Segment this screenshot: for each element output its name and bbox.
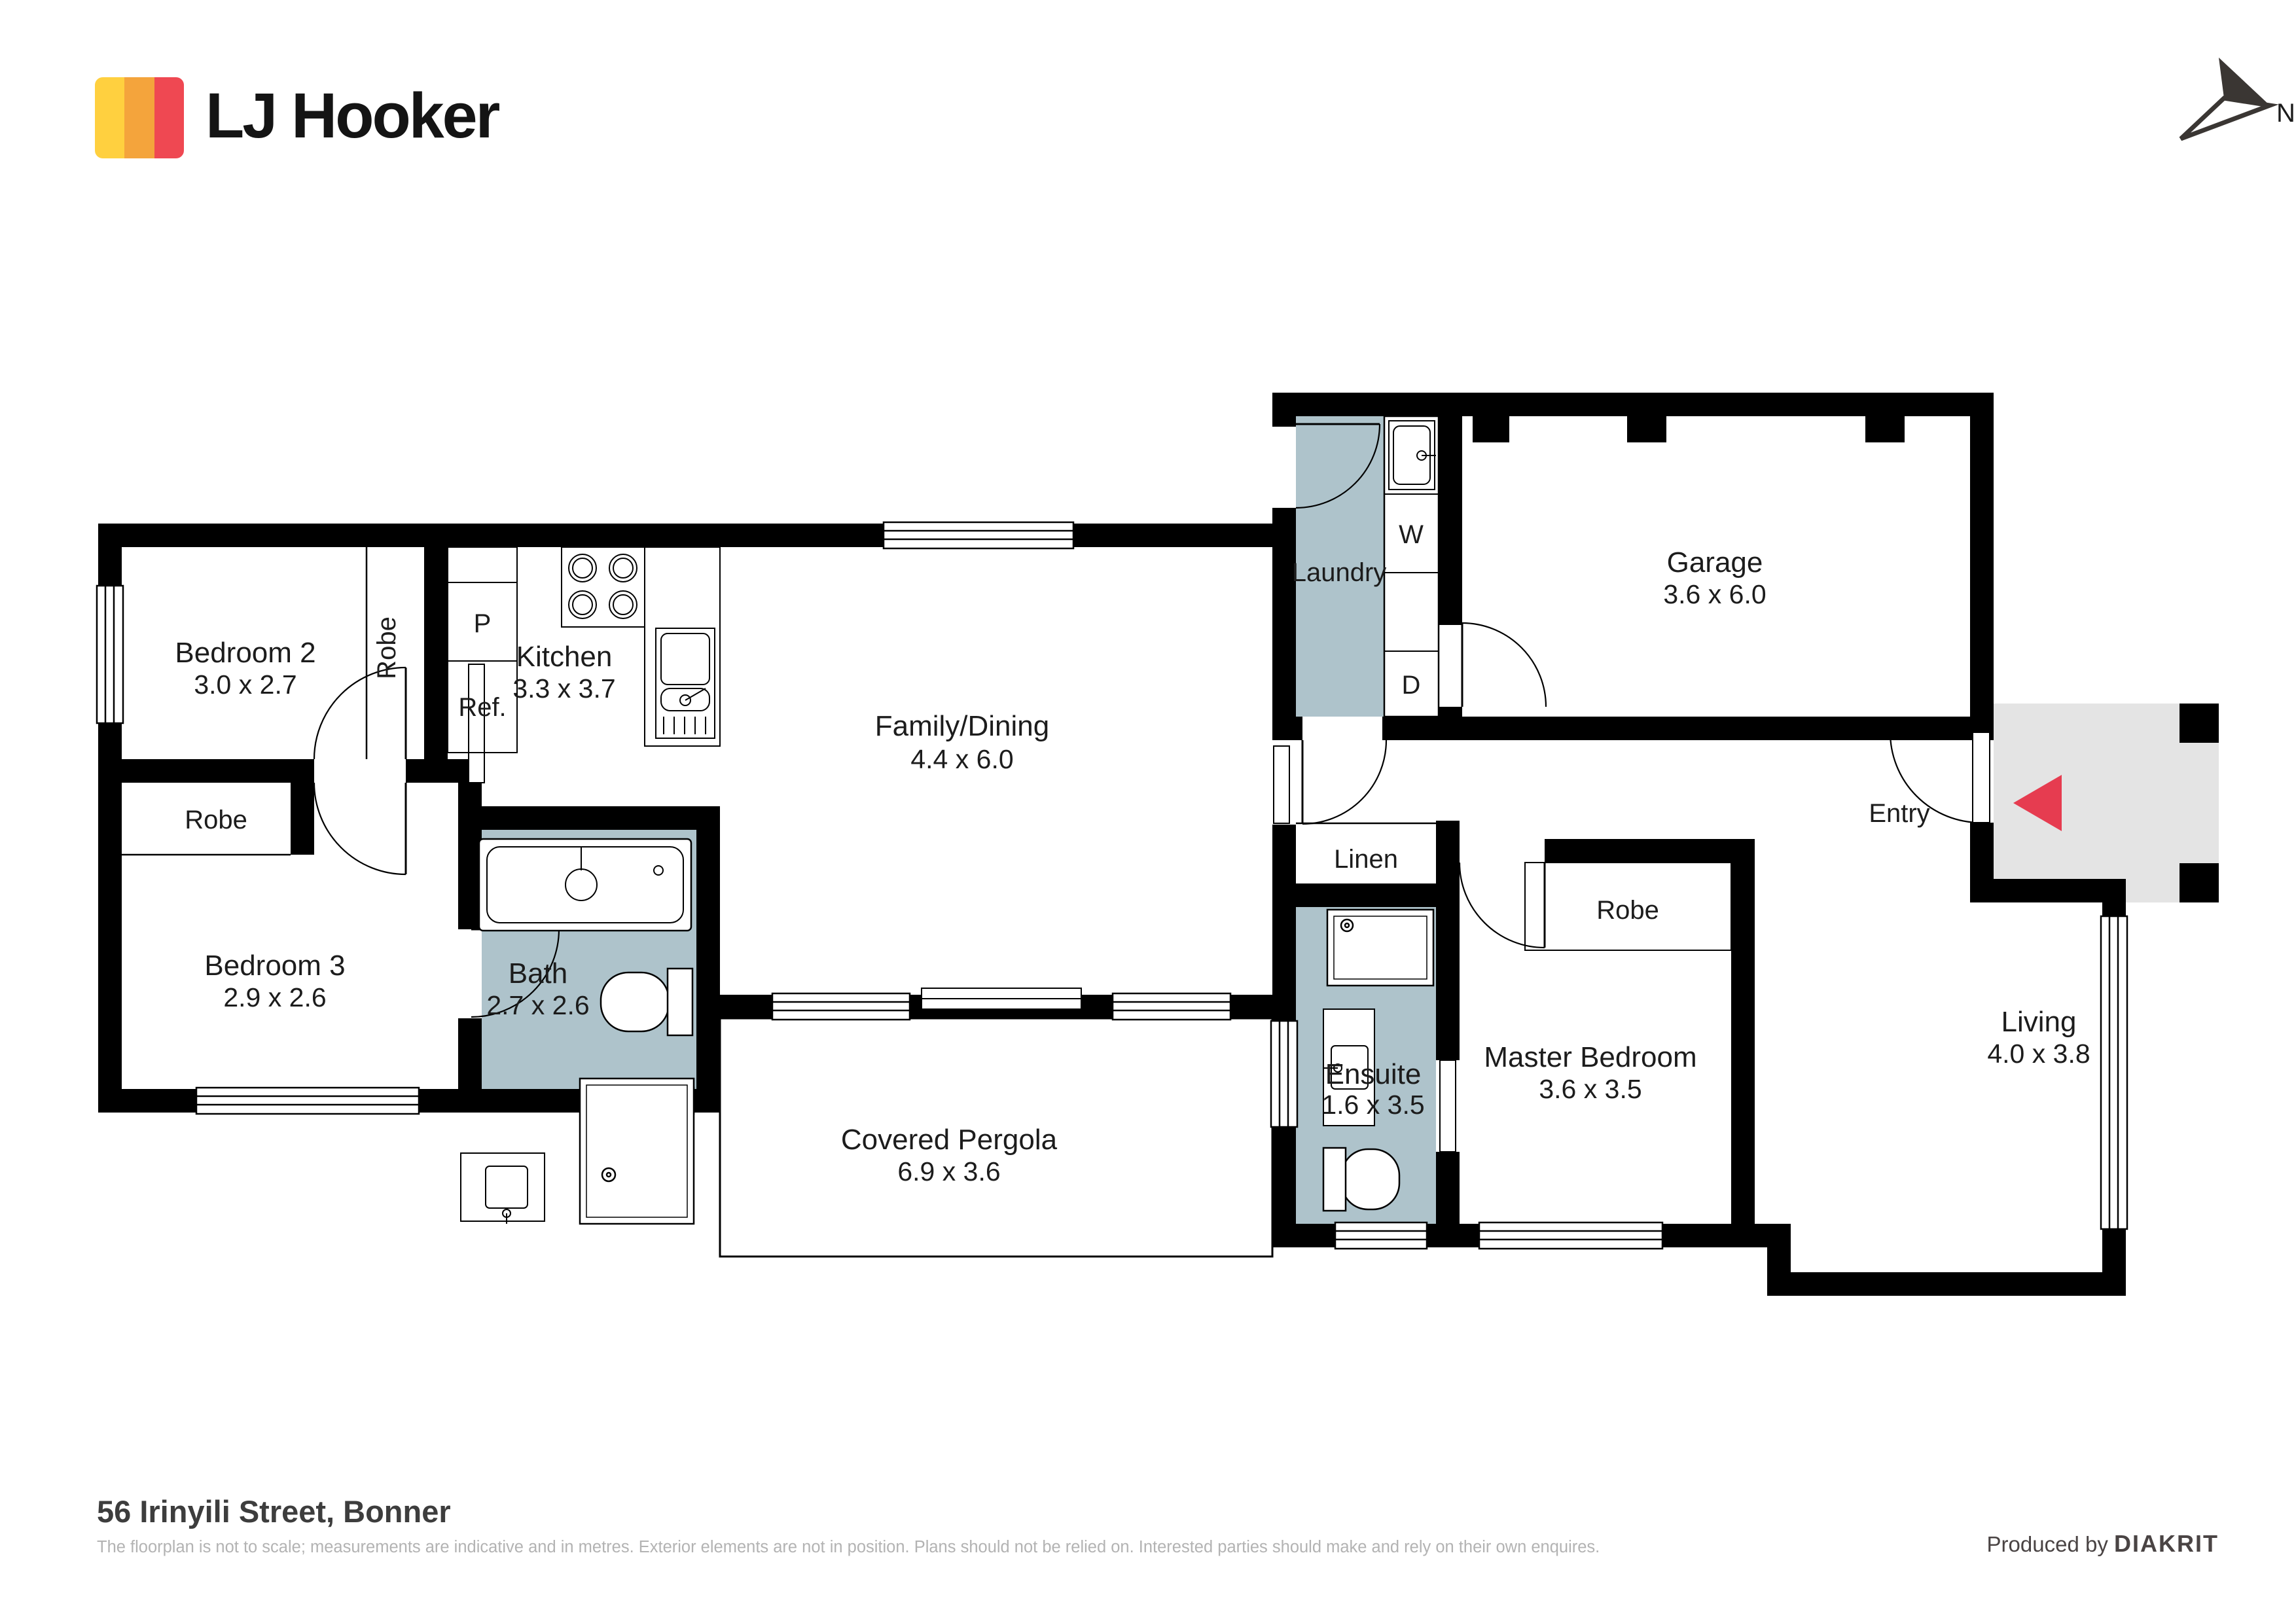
window-master-bottom [1479,1222,1662,1249]
ensuite-dims: 1.6 x 3.5 [1321,1090,1424,1120]
ensuite-shower-icon [1327,910,1433,986]
disclaimer-text: The floorplan is not to scale; measureme… [97,1538,1600,1557]
toilet-icon [601,969,692,1035]
living-dims: 4.0 x 3.8 [1987,1039,2090,1069]
door-bedroom3 [314,783,406,874]
floorplan-svg: N Bedroom 2 3.0 x 2.7 Robe P Ref. Kitche… [0,0,2296,1623]
bath-dims: 2.7 x 2.6 [486,990,589,1020]
robe-bedroom2-label: Robe [372,616,401,679]
window-living-right [2101,916,2127,1229]
living-label: Living [2001,1006,2077,1038]
robe-master-label: Robe [1596,896,1659,925]
bath-label: Bath [509,957,568,990]
window-ensuite-left [1271,1021,1297,1127]
entry-label: Entry [1869,799,1929,828]
door-laundry-bottom [1302,740,1386,824]
window-bedroom2-left [97,586,123,723]
window-pergola-left [772,993,910,1020]
credit-prefix: Produced by [1987,1532,2108,1556]
pergola-dims: 6.9 x 3.6 [897,1156,1000,1186]
bedroom2-dims: 3.0 x 2.7 [194,669,296,700]
ensuite-label: Ensuite [1325,1058,1422,1090]
kitchen-dims: 3.3 x 3.7 [512,673,615,704]
kitchen-label: Kitchen [516,641,613,673]
north-label: N [2276,99,2295,128]
pantry-label: P [474,609,492,638]
robe-bedroom3-label: Robe [185,806,247,834]
window-family-top [884,522,1073,548]
window-ensuite-bottom [1335,1222,1427,1249]
floorplan-page: LJ Hooker [0,0,2296,1623]
stove-icon [562,547,647,627]
window-pergola-right [1113,993,1230,1020]
fridge-label: Ref. [458,693,506,722]
producer-credit: Produced by DIAKRIT [1987,1530,2219,1558]
vanity-icon [461,1153,545,1224]
door-garage [1462,623,1546,707]
washer-label: W [1399,520,1424,549]
door-master [1460,863,1545,948]
garage-dims: 3.6 x 6.0 [1663,579,1766,609]
north-arrow-icon: N [2181,58,2295,139]
slider-hall-bath [469,664,484,783]
linen-label: Linen [1334,845,1398,874]
credit-brand: DIAKRIT [2114,1530,2219,1557]
door-ensuite [1440,1060,1456,1152]
slider-family-hall [1274,746,1289,823]
slider-pergola [922,988,1081,1009]
master-label: Master Bedroom [1484,1041,1696,1073]
bathtub-icon [479,839,691,931]
window-bedroom3-bottom [196,1088,419,1114]
shower-icon [580,1079,694,1224]
bedroom3-dims: 2.9 x 2.6 [223,982,326,1012]
laundry-label: Laundry [1292,558,1387,587]
pergola-label: Covered Pergola [841,1124,1058,1156]
garage-label: Garage [1667,546,1763,579]
bedroom3-label: Bedroom 3 [204,950,345,982]
door-bedroom2 [314,668,406,759]
ensuite-toilet-icon [1323,1148,1399,1211]
property-address: 56 Irinyili Street, Bonner [97,1493,451,1529]
family-dims: 4.4 x 6.0 [910,744,1013,774]
dryer-label: D [1402,671,1421,700]
family-label: Family/Dining [875,710,1050,742]
bedroom2-label: Bedroom 2 [175,637,315,669]
master-dims: 3.6 x 3.5 [1539,1074,1641,1104]
